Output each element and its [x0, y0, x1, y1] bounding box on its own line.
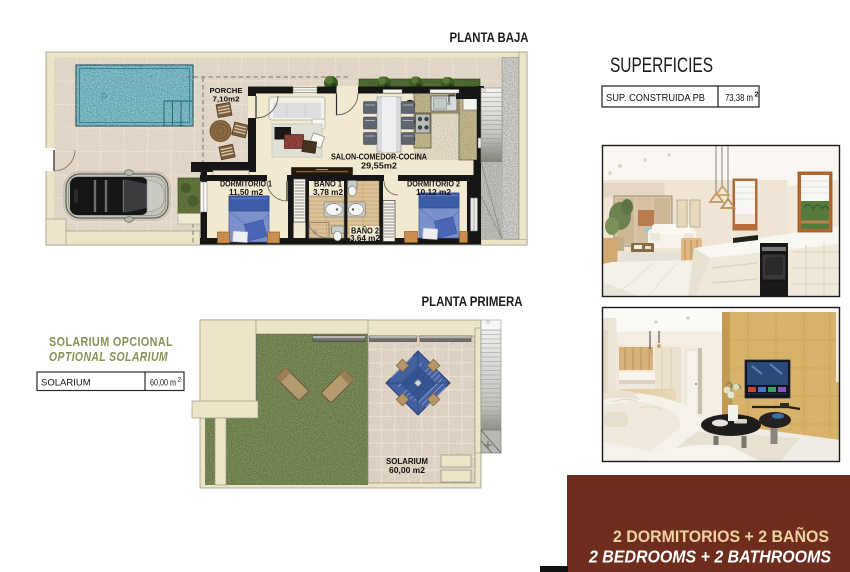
svg-text:PLANTA PRIMERA: PLANTA PRIMERA — [422, 294, 523, 309]
svg-text:29,55m2: 29,55m2 — [361, 161, 397, 171]
svg-text:2 DORMITORIOS + 2 BAÑOS: 2 DORMITORIOS + 2 BAÑOS — [613, 526, 829, 546]
svg-text:3,78 m2: 3,78 m2 — [313, 188, 344, 197]
svg-text:SUP. CONSTRUIDA PB: SUP. CONSTRUIDA PB — [606, 92, 705, 104]
svg-text:10,12 m2: 10,12 m2 — [416, 188, 452, 197]
svg-text:PLANTA BAJA: PLANTA BAJA — [450, 30, 529, 45]
svg-text:SUPERFICIES: SUPERFICIES — [610, 54, 713, 77]
svg-text:11,50 m2: 11,50 m2 — [229, 188, 264, 197]
svg-text:SOLARIUM: SOLARIUM — [41, 378, 91, 389]
svg-text:SOLARIUM: SOLARIUM — [386, 457, 428, 466]
svg-text:60,00 m2: 60,00 m2 — [389, 466, 426, 475]
svg-text:3,64 m2: 3,64 m2 — [350, 234, 381, 243]
svg-text:2: 2 — [178, 377, 182, 384]
svg-text:2: 2 — [755, 92, 759, 99]
svg-text:OPTIONAL SOLARIUM: OPTIONAL SOLARIUM — [49, 349, 169, 364]
svg-text:2 BEDROOMS + 2 BATHROOMS: 2 BEDROOMS + 2 BATHROOMS — [588, 547, 831, 567]
svg-text:60,00 m: 60,00 m — [150, 378, 176, 389]
svg-text:SOLARIUM OPCIONAL: SOLARIUM OPCIONAL — [49, 334, 173, 349]
svg-text:73,38 m: 73,38 m — [725, 92, 753, 104]
svg-text:7,10m2: 7,10m2 — [213, 95, 240, 104]
